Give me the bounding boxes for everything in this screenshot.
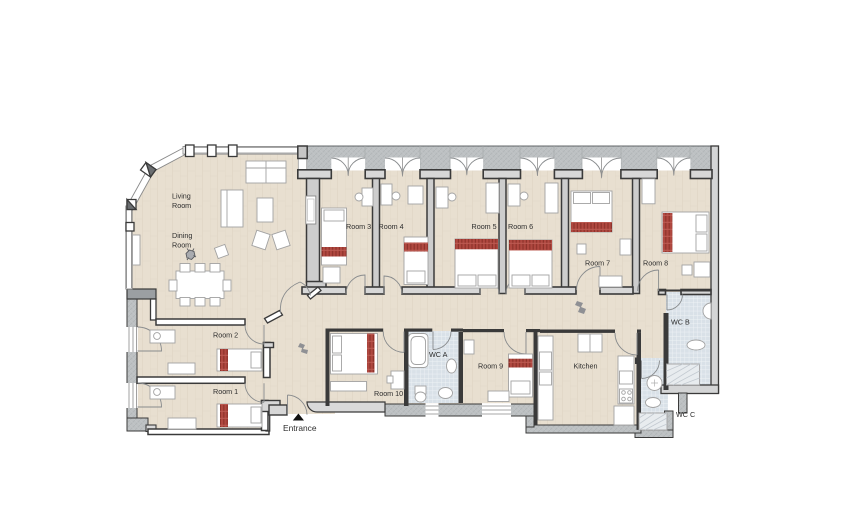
- svg-text:WC A: WC A: [429, 350, 448, 359]
- svg-text:Room 4: Room 4: [379, 222, 404, 231]
- svg-text:Room 5: Room 5: [472, 222, 497, 231]
- svg-text:WC C: WC C: [676, 410, 695, 419]
- svg-text:Dining: Dining: [172, 231, 192, 240]
- svg-text:Room 3: Room 3: [346, 222, 371, 231]
- svg-text:Room 9: Room 9: [478, 362, 503, 371]
- svg-text:Room 1: Room 1: [213, 387, 238, 396]
- svg-text:Living: Living: [172, 192, 191, 201]
- svg-text:Room 8: Room 8: [643, 259, 668, 268]
- svg-text:Entrance: Entrance: [283, 423, 317, 433]
- svg-text:WC B: WC B: [671, 318, 690, 327]
- svg-text:Room 2: Room 2: [213, 331, 238, 340]
- svg-text:Room 10: Room 10: [374, 389, 403, 398]
- svg-text:Kitchen: Kitchen: [574, 362, 598, 371]
- svg-text:Room 6: Room 6: [508, 222, 533, 231]
- svg-text:Room: Room: [172, 241, 191, 250]
- svg-text:Room: Room: [172, 201, 191, 210]
- svg-text:Room 7: Room 7: [585, 259, 610, 268]
